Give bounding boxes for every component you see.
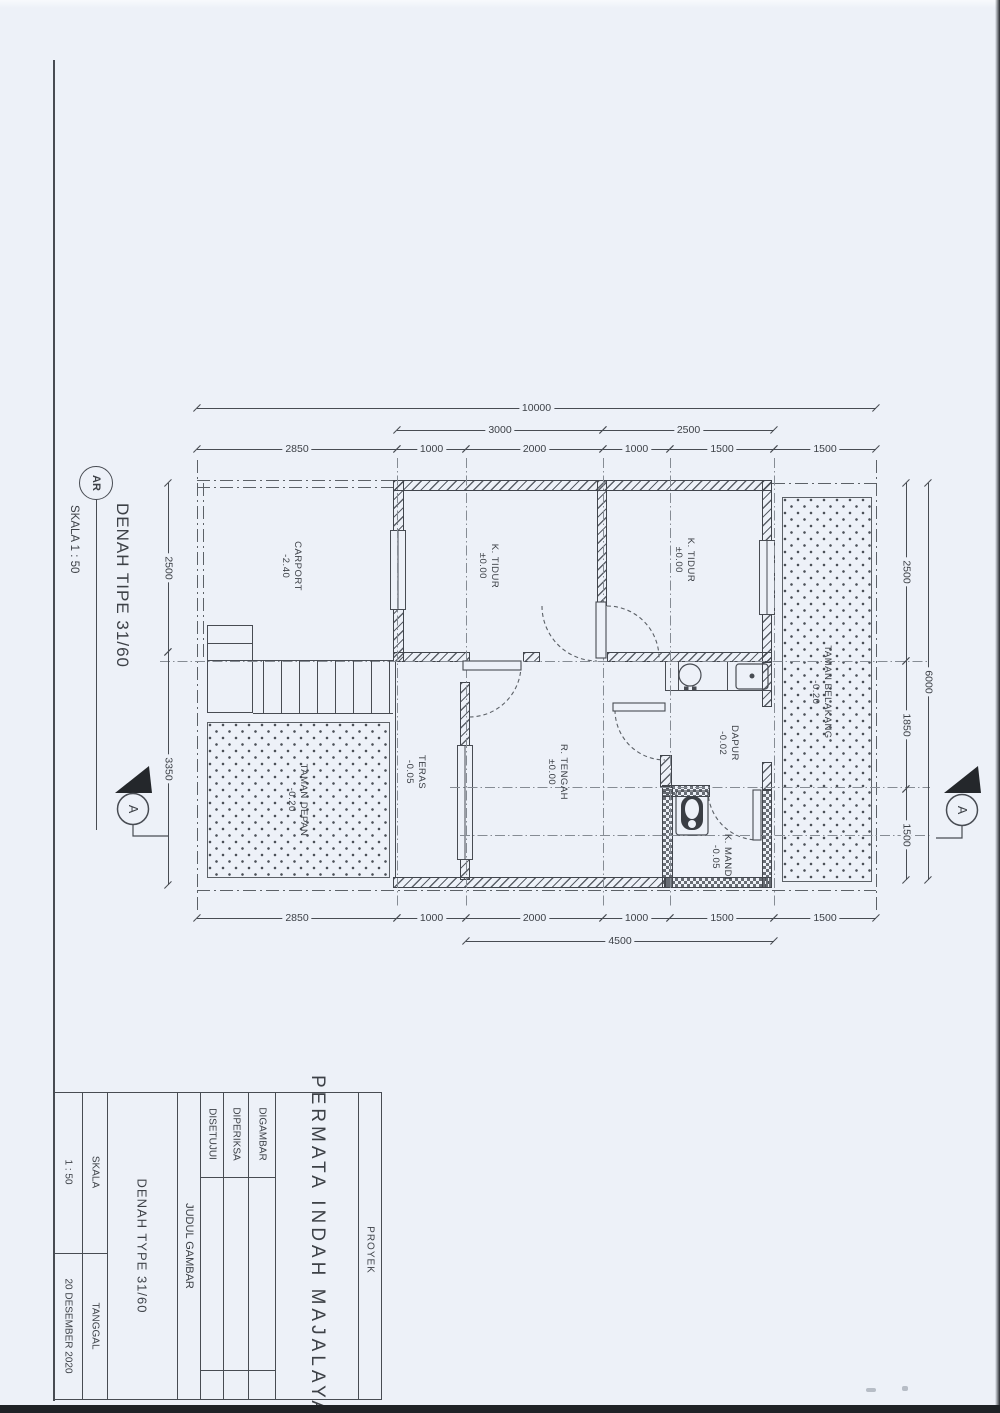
title-block-frame <box>53 1092 382 1400</box>
dimension-tick <box>872 404 880 412</box>
window-bedroom1 <box>390 530 406 610</box>
room-name: K. TIDUR <box>684 538 696 582</box>
dimension-label: 1500 <box>901 820 912 849</box>
dimension-tick <box>770 426 778 434</box>
dimension-label: 2500 <box>163 553 174 582</box>
room-level: -0.05 <box>403 755 415 789</box>
window-teras <box>457 745 473 860</box>
axis-h-3 <box>460 835 930 836</box>
axis-v-1 <box>397 458 398 908</box>
section-marker-left-icon <box>115 766 168 836</box>
counter-divider-1 <box>678 661 679 691</box>
stairs-bottom-edge <box>253 713 393 714</box>
room-name: TERAS <box>415 755 427 789</box>
room-label: TAMAN DEPAN-0.20 <box>285 764 309 837</box>
drawing-scale: SKALA 1 : 50 <box>68 505 80 573</box>
dimension-label: 1000 <box>417 913 446 924</box>
dimension-label: 1500 <box>810 913 839 924</box>
tb-line-3 <box>177 1092 178 1400</box>
dimension-label: 10000 <box>519 403 554 414</box>
tb-line-5 <box>223 1092 224 1400</box>
tb-judul-gambar: JUDUL GAMBAR <box>183 1203 195 1289</box>
dimension-tick <box>872 445 880 453</box>
room-level: -0.20 <box>285 764 297 837</box>
dimension-label: 1000 <box>622 444 651 455</box>
tb-div-scale <box>53 1253 107 1254</box>
axis-v-4 <box>670 458 671 908</box>
room-label: CARPORT-2.40 <box>279 541 303 591</box>
tb-drawing-name: DENAH TYPE 31/60 <box>135 1179 150 1314</box>
tb-tanggal-label: TANGGAL <box>90 1302 101 1349</box>
dimension-label: 6000 <box>923 667 934 696</box>
dimension-label: 4500 <box>605 936 634 947</box>
stair-step-line <box>299 660 300 713</box>
wall-bath-west <box>662 787 673 888</box>
room-label: K. TIDUR±0.00 <box>476 544 500 588</box>
dimension-label: 2500 <box>674 425 703 436</box>
toilet-icon <box>676 791 708 835</box>
dimension-tick <box>770 937 778 945</box>
kitchen-counter <box>665 661 772 691</box>
section-label-right: A <box>955 806 969 814</box>
tb-skala-label: SKALA <box>90 1156 101 1188</box>
dimension-label: 1000 <box>622 913 651 924</box>
dimension-label: 2500 <box>901 557 912 586</box>
room-level: -2.40 <box>279 541 291 591</box>
axis-h-2 <box>450 787 930 788</box>
room-label: DAPUR-0.02 <box>716 725 740 761</box>
scan-edge-bottom <box>0 1405 1000 1413</box>
title-ref-code: AR <box>90 475 102 491</box>
tb-line-6 <box>248 1092 249 1400</box>
dimension-label: 1500 <box>707 913 736 924</box>
dimension-label: 2850 <box>282 913 311 924</box>
tb-line-7 <box>275 1092 276 1400</box>
teras-west-edge <box>395 662 396 877</box>
dimension-label: 1500 <box>707 444 736 455</box>
door-arcs <box>469 606 758 840</box>
dimension-label: 2000 <box>520 444 549 455</box>
wall-top <box>393 480 772 491</box>
room-label: K. TIDUR±0.00 <box>672 538 696 582</box>
wall-bottom <box>393 877 665 888</box>
tb-line-8 <box>358 1092 359 1400</box>
dimension-label: 1850 <box>901 710 912 739</box>
room-name: CARPORT <box>291 541 303 591</box>
carport-planter <box>207 625 253 713</box>
tb-div-sig-bottom <box>200 1370 275 1371</box>
boundary-garden-top <box>772 483 876 484</box>
room-label: K. MANDI-0.05 <box>709 834 733 880</box>
door-leaves <box>463 602 761 840</box>
boundary-west-inner <box>203 483 204 660</box>
title-underline <box>96 466 97 830</box>
tb-tanggal-value: 20 DESEMBER 2020 <box>63 1278 74 1373</box>
stair-step-line <box>353 660 354 713</box>
dimension-label: 1000 <box>417 444 446 455</box>
room-name: R. TENGAH <box>557 744 569 800</box>
room-label: R. TENGAH±0.00 <box>545 744 569 800</box>
axis-v-3 <box>603 458 604 908</box>
planter-line-1 <box>207 643 253 644</box>
wall-bedroom-divider <box>597 480 607 606</box>
drawing-title: DENAH TIPE 31/60 <box>112 503 132 668</box>
dimension-tick <box>164 881 172 889</box>
boundary-west <box>197 460 198 910</box>
boundary-carport-top-2 <box>197 487 393 488</box>
section-marker-right-icon <box>936 766 981 838</box>
dimension-label: 3000 <box>485 425 514 436</box>
boundary-east <box>876 460 877 910</box>
scan-smudge-2 <box>902 1386 908 1391</box>
stair-step-line <box>371 660 372 713</box>
tb-line-1 <box>82 1092 83 1400</box>
tb-div-sig-top <box>200 1177 275 1178</box>
stair-step-line <box>317 660 318 713</box>
tb-line-4 <box>200 1092 201 1400</box>
room-level: -0.20 <box>809 645 821 738</box>
room-name: K. TIDUR <box>488 544 500 588</box>
axis-v-5 <box>774 458 775 908</box>
room-label: TERAS-0.05 <box>403 755 427 789</box>
section-label-left: A <box>126 805 140 813</box>
room-level: ±0.00 <box>476 544 488 588</box>
room-name: TAMAN BELAKANG <box>821 645 833 738</box>
drawing-sheet: AR DENAH TIPE 31/60 SKALA 1 : 50 <box>0 0 1000 1413</box>
wall-bath-east <box>762 790 772 888</box>
stair-step-line <box>281 660 282 713</box>
tb-digambar: DIGAMBAR <box>257 1107 268 1160</box>
dimension-label: 2850 <box>282 444 311 455</box>
axis-v-2 <box>466 458 467 908</box>
stair-step-line <box>335 660 336 713</box>
room-label: TAMAN BELAKANG-0.20 <box>809 645 833 738</box>
tb-skala-value: 1 : 50 <box>63 1159 74 1184</box>
room-name: TAMAN DEPAN <box>297 764 309 837</box>
tb-project-name: PERMATA INDAH MAJALAYA <box>306 1075 328 1413</box>
tb-diperiksa: DIPERIKSA <box>231 1107 242 1160</box>
window-bedroom2 <box>759 540 775 615</box>
wall-kitchen-east-b <box>762 762 772 790</box>
room-name: K. MANDI <box>721 834 733 880</box>
dimension-label: 2000 <box>520 913 549 924</box>
dimension-label: 1500 <box>810 444 839 455</box>
room-level: -0.05 <box>709 834 721 880</box>
tb-line-2 <box>107 1092 108 1400</box>
tb-proyek-label: PROYEK <box>365 1226 376 1274</box>
scan-smudge-1 <box>866 1388 876 1392</box>
room-level: ±0.00 <box>672 538 684 582</box>
dimension-tick <box>924 876 932 884</box>
dimension-label: 3350 <box>163 754 174 783</box>
room-level: -0.02 <box>716 725 728 761</box>
counter-divider-2 <box>727 661 728 691</box>
dimension-tick <box>872 914 880 922</box>
dimension-tick <box>902 876 910 884</box>
boundary-carport-top-1 <box>197 480 393 481</box>
room-level: ±0.00 <box>545 744 557 800</box>
scan-edge-right <box>995 0 1000 1413</box>
room-name: DAPUR <box>728 725 740 761</box>
stair-step-line <box>263 660 264 713</box>
tb-disetujui: DISETUJUI <box>207 1108 218 1160</box>
stair-step-line <box>389 660 390 713</box>
